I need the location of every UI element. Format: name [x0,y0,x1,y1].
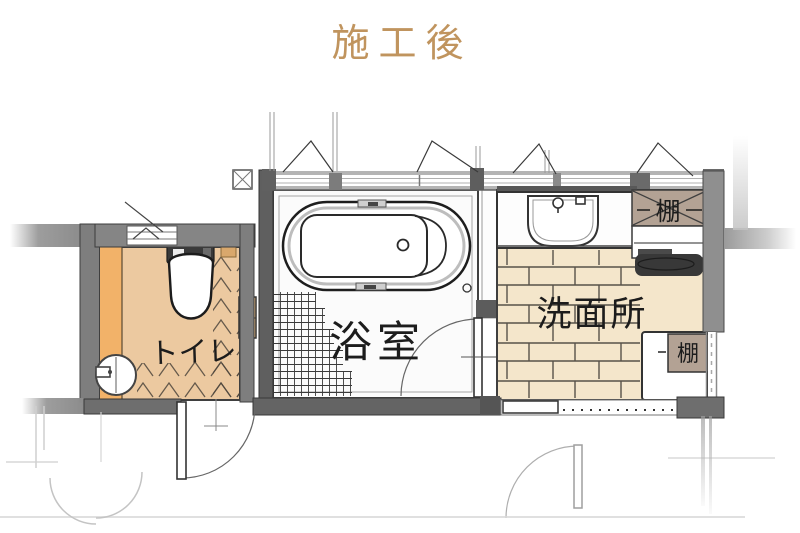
bathtub [283,200,470,290]
toilet-label: トイレ [149,333,237,370]
toilet-door-swing-arc [182,405,255,478]
faucet-spout [576,197,585,204]
wood-counter-top [221,247,236,257]
hall-door [506,445,582,518]
hand-basin [96,355,136,395]
hall-door-swing-arc [506,446,578,518]
washroom-label: 洗面所 [536,295,647,335]
sliding-door-panel [503,401,558,413]
top-wall-windows [262,112,724,190]
cabinet-lower: 棚 [642,332,708,400]
window-swing-flags [283,141,693,176]
toilet-door [177,399,255,479]
bath-left-wall [259,170,273,402]
floor-plan-drawing: 施工後 [0,0,800,533]
page-title: 施工後 [331,21,472,65]
vanity-sink [497,186,637,248]
shelf-lower-label: 棚 [677,342,699,367]
toilet-fixture [167,244,214,319]
left-exterior-walls [10,224,100,414]
toilet-top-wall [95,202,255,247]
bottom-walls-and-doors [0,396,775,524]
washroom-sliding-door [501,400,677,415]
shelf-unit-upper: 棚 [632,190,707,258]
floor-plan-page: 施工後 [0,0,800,533]
faucet-handle [553,198,563,208]
corner-column [233,170,252,189]
washroom: 棚 棚 [497,186,708,400]
hall-door-leaf [574,445,582,508]
toilet-room [95,202,256,402]
hallway-sketch-lines [0,406,775,524]
toilet-door-leaf [177,402,186,479]
tub-drain [398,240,409,251]
right-exterior-walls [703,136,796,400]
bath-label: 浴室 [329,318,425,368]
toilet-right-wall [240,224,254,402]
shelf-upper-label: 棚 [655,197,680,226]
